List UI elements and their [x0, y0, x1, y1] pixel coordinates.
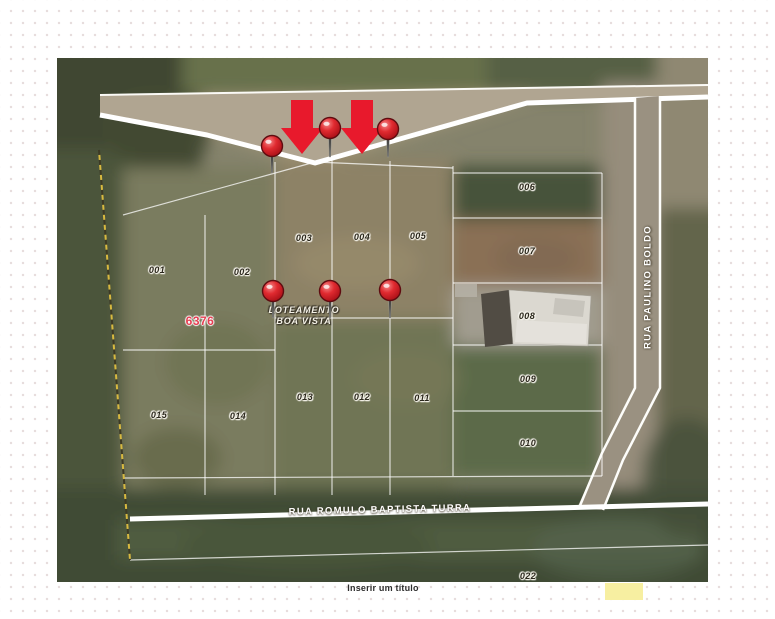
parcel-label: 009 — [520, 374, 536, 384]
parcel-label: 008 — [519, 311, 535, 321]
parcel-label: 014 — [230, 411, 246, 421]
parcel-label: 003 — [296, 233, 312, 243]
subdivision-label: LOTEAMENTO BOA VISTA — [269, 305, 340, 327]
parcel-label: 015 — [151, 410, 167, 420]
subdivision-line1: LOTEAMENTO — [269, 305, 340, 316]
parcel-label: 010 — [520, 438, 536, 448]
parcel-label: 012 — [354, 392, 370, 402]
parcel-label: 002 — [234, 267, 250, 277]
map-base-art — [57, 58, 708, 582]
parcel-label: 004 — [354, 232, 370, 242]
parcel-label: 006 — [519, 182, 535, 192]
slide-title-placeholder[interactable]: Inserir um título — [347, 583, 418, 593]
slide-canvas: 001 002 003 004 005 006 007 008 009 010 … — [0, 0, 775, 619]
yellow-highlight-rect[interactable] — [605, 583, 643, 600]
parcel-label: 022 — [520, 571, 536, 581]
block-number-label: 6376 — [186, 314, 215, 328]
parcel-label: 001 — [149, 265, 165, 275]
parcel-label: 013 — [297, 392, 313, 402]
street-label-rua-paulino-boldo: RUA PAULINO BOLDO — [643, 225, 654, 349]
aerial-map-image[interactable]: 001 002 003 004 005 006 007 008 009 010 … — [57, 58, 708, 582]
parcel-label: 007 — [519, 246, 535, 256]
parcel-label: 011 — [414, 393, 430, 403]
parcel-label: 005 — [410, 231, 426, 241]
subdivision-line2: BOA VISTA — [269, 316, 340, 327]
